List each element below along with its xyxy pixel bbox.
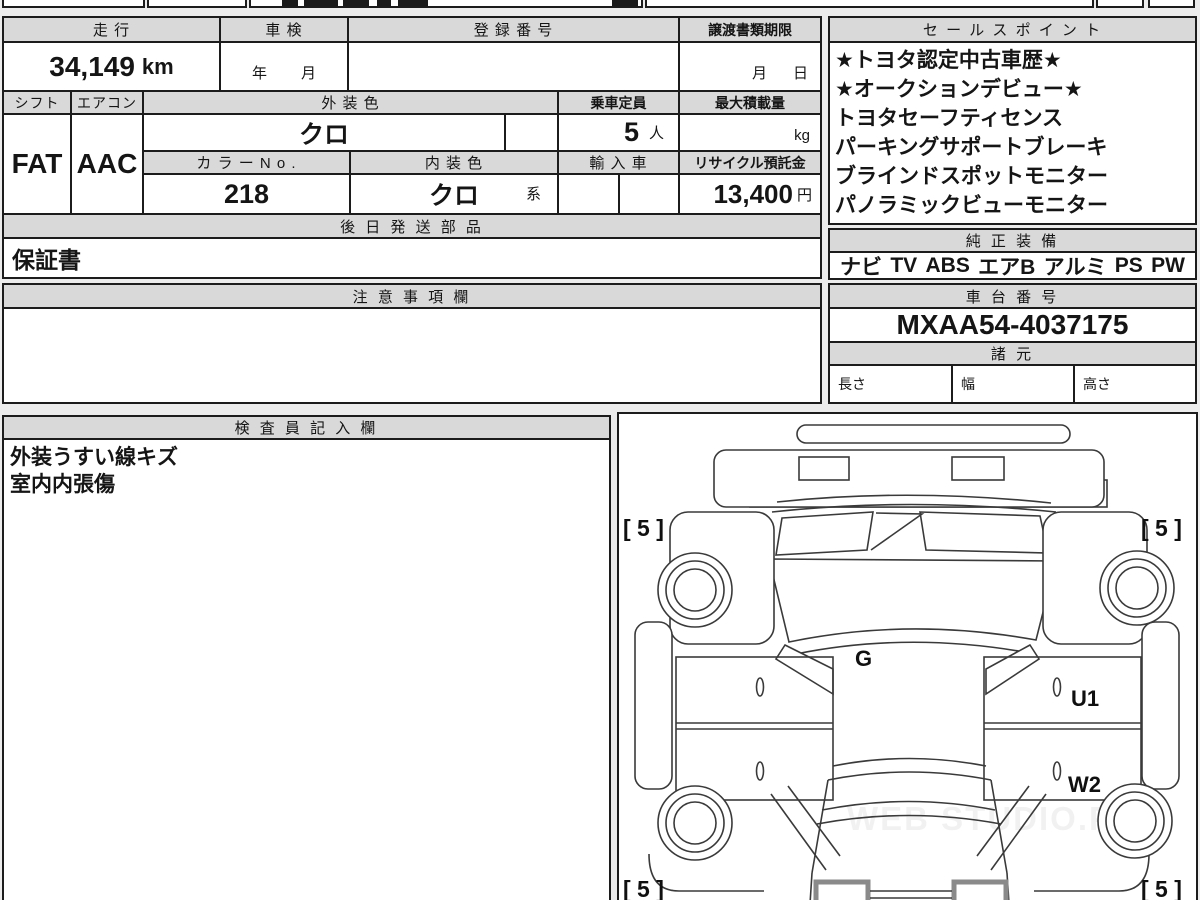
dimension-height-cell: 高さ [1073, 364, 1197, 404]
windshield-pane-right [920, 512, 1048, 553]
recycle-deposit-unit: 円 [797, 184, 812, 213]
tire-tread-front-left-label: [ 5 ] [623, 515, 664, 541]
windshield-base-arc [796, 642, 1030, 654]
front-bumper-strip [797, 425, 1070, 443]
registration-no-value [347, 41, 680, 92]
list-item: ブラインドスポットモニター [835, 162, 1108, 191]
later-shipped-parts-value: 保証書 [2, 237, 822, 279]
door-handle [757, 762, 764, 780]
glass-mark-label: G [855, 646, 872, 671]
tire-tread-rear-left-label: [ 5 ] [623, 876, 664, 900]
list-item: パーキングサポートブレーキ [835, 133, 1107, 162]
tire-tread-rear-right-label: [ 5 ] [1141, 876, 1182, 900]
tire-tread-front-right-label: [ 5 ] [1141, 515, 1182, 541]
inspection-year-unit: 年 [252, 62, 267, 83]
dimensions-header: 諸 元 [828, 341, 1197, 366]
clipped-text-remnant [343, 0, 369, 7]
door-handle [1054, 762, 1061, 780]
windshield-center-split [871, 513, 922, 550]
mileage-value: 34,149 km [2, 41, 221, 92]
interior-color-suffix: 系 [526, 183, 541, 204]
transfer-day-unit: 日 [793, 62, 808, 83]
cautions-value [2, 307, 822, 404]
later-shipped-parts-header: 後 日 発 送 部 品 [2, 213, 822, 239]
seating-capacity-value: 5 人 [557, 113, 680, 152]
transfer-month-unit: 月 [752, 62, 767, 83]
roof-rear-arc [828, 772, 991, 780]
door-handle [757, 678, 764, 696]
dimension-length-cell: 長さ [828, 364, 953, 404]
mileage-unit: km [142, 54, 174, 80]
damage-diagram-box: WEB STUDIO.PRO [617, 412, 1198, 900]
wheel-rear-left [658, 786, 732, 860]
exterior-color-sub-cell [504, 113, 559, 152]
clipped-cell [147, 0, 247, 8]
list-item: 室内内張傷 [10, 471, 115, 498]
transfer-deadline-header: 譲渡書類期限 [678, 16, 822, 43]
registration-no-header: 登 録 番 号 [347, 16, 680, 43]
list-item: トヨタセーフティセンス [835, 104, 1063, 133]
chassis-no-header: 車 台 番 号 [828, 283, 1197, 309]
list-item: アルミ [1044, 251, 1107, 280]
chassis-no-value: MXAA54-4037175 [828, 307, 1197, 343]
imported-car-cell-a [557, 173, 620, 215]
list-item: ナビ [840, 251, 882, 280]
imported-car-header: 輸 入 車 [557, 150, 680, 175]
clipped-cell [1096, 0, 1144, 8]
inspection-value: 年 月 [219, 41, 349, 92]
sill-left [635, 622, 672, 789]
exterior-color-value: クロ [142, 113, 506, 152]
max-load-unit: kg [794, 127, 810, 144]
clipped-text-remnant [398, 0, 428, 7]
list-item: パノラミックビューモニター [835, 191, 1108, 220]
sales-points-list: ★トヨタ認定中古車歴★★オークションデビュー★トヨタセーフティセンスパーキングサ… [828, 41, 1197, 225]
seating-capacity-number: 5 [624, 117, 639, 148]
windshield-pane-left [776, 512, 873, 555]
interior-color-name: クロ [429, 176, 479, 212]
c-pillar-left [771, 786, 840, 870]
auction-sheet: 走 行 車 検 登 録 番 号 譲渡書類期限 34,149 km 年 月 月 日… [0, 0, 1200, 900]
wheel-front-right [1100, 551, 1174, 625]
list-item: PW [1151, 254, 1185, 278]
max-load-header: 最大積載量 [678, 90, 822, 115]
color-no-value: 218 [142, 173, 351, 215]
tail-light-left [816, 882, 868, 900]
list-item: TV [890, 254, 917, 278]
clipped-cell [1148, 0, 1195, 8]
shift-value: FAT [2, 113, 72, 215]
sill-right [1142, 622, 1179, 789]
dimension-width-cell: 幅 [951, 364, 1075, 404]
hood [769, 559, 1056, 642]
mileage-number: 34,149 [49, 51, 135, 83]
clipped-text-remnant [377, 0, 391, 7]
aircon-header: エアコン [70, 90, 144, 115]
a-pillar-right [986, 645, 1039, 694]
tail-light-right [954, 882, 1006, 900]
genuine-equipment-header: 純 正 装 備 [828, 228, 1197, 253]
list-item: ★トヨタ認定中古車歴★ [835, 46, 1062, 75]
list-item: エアB [978, 251, 1035, 280]
door-handle [1054, 678, 1061, 696]
rear-fender-left [649, 854, 764, 891]
front-bumper [714, 450, 1104, 507]
damage-mark-u1-label: U1 [1071, 686, 1099, 711]
mileage-header: 走 行 [2, 16, 221, 43]
roof-rear-arc [833, 759, 986, 767]
wheel-rear-right [1098, 784, 1172, 858]
damage-mark-w2-label: W2 [1068, 772, 1101, 797]
exterior-color-header: 外 装 色 [142, 90, 559, 115]
shift-header: シフト [2, 90, 72, 115]
interior-color-header: 内 装 色 [349, 150, 559, 175]
recycle-deposit-value: 13,400 円 [678, 173, 822, 215]
wheel-front-left [658, 553, 732, 627]
seating-capacity-header: 乗車定員 [557, 90, 680, 115]
rear-bumper-lines [870, 891, 952, 898]
interior-color-value: クロ 系 [349, 173, 559, 215]
car-damage-diagram: WEB STUDIO.PRO [619, 414, 1196, 900]
aircon-value: AAC [70, 113, 144, 215]
imported-car-cell-b [618, 173, 680, 215]
recycle-deposit-header: リサイクル預託金 [678, 150, 822, 175]
transfer-deadline-value: 月 日 [678, 41, 822, 92]
inspector-notes-header: 検 査 員 記 入 欄 [2, 415, 611, 440]
cautions-header: 注 意 事 項 欄 [2, 283, 822, 309]
sales-points-header: セ ー ル ス ポ イ ン ト [828, 16, 1197, 43]
clipped-cell [2, 0, 145, 8]
list-item: ★オークションデビュー★ [835, 75, 1083, 104]
inspector-notes-value: 外装うすい線キズ室内内張傷 [2, 438, 611, 900]
rear-fender-right [1034, 854, 1149, 891]
recycle-deposit-number: 13,400 [713, 179, 793, 210]
inspection-header: 車 検 [219, 16, 349, 43]
door-split-lines [676, 723, 1141, 729]
clipped-text-remnant [612, 0, 638, 7]
list-item: PS [1115, 254, 1143, 278]
clipped-cell [645, 0, 1094, 8]
seating-capacity-unit: 人 [649, 122, 664, 143]
genuine-equipment-list: ナビTVABSエアBアルミPSPW [828, 251, 1197, 280]
max-load-value: kg [678, 113, 822, 152]
list-item: ABS [926, 254, 970, 278]
clipped-text-remnant [304, 0, 338, 7]
inspection-month-unit: 月 [301, 62, 316, 83]
color-no-header: カ ラ ー N o . [142, 150, 351, 175]
clipped-text-remnant [282, 0, 298, 7]
list-item: 外装うすい線キズ [10, 444, 178, 471]
